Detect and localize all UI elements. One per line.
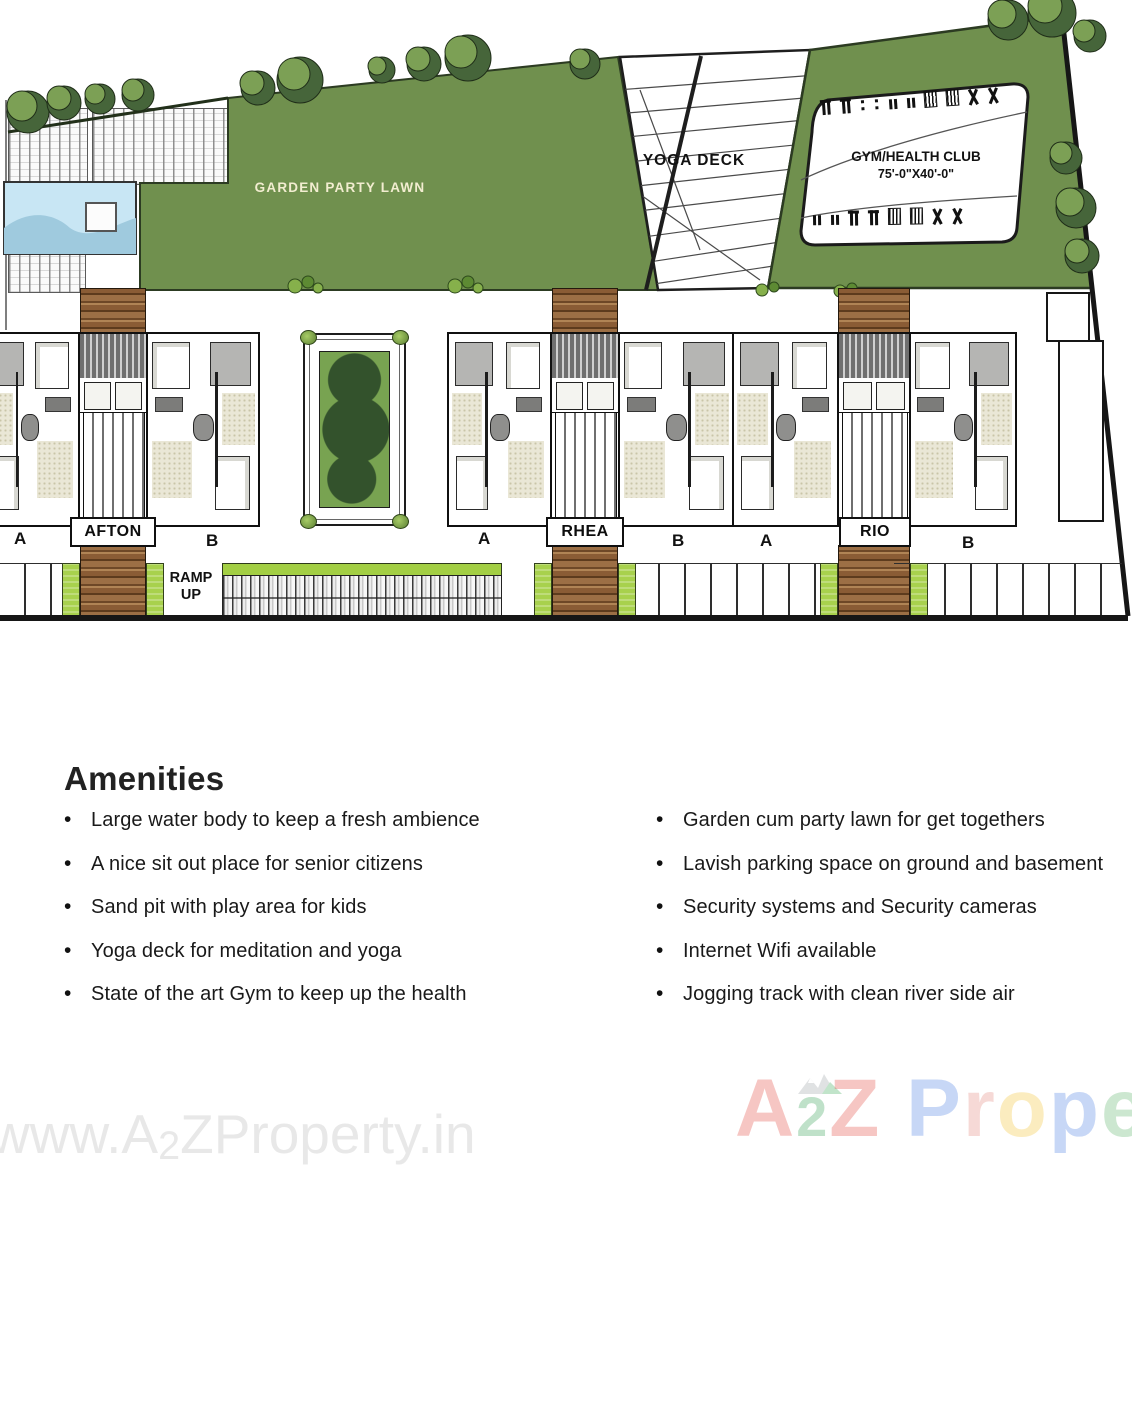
site-boundary-bottom [0, 615, 1128, 621]
floorplan-unit [0, 332, 81, 527]
stair-core [78, 332, 148, 527]
planter-strip [62, 563, 80, 620]
gym-equipment-icon [840, 98, 852, 114]
planter-strip [618, 563, 636, 620]
gym-equipment-icon [923, 90, 937, 108]
building-name-rio: RIO [839, 517, 911, 547]
watermark-letter: A [735, 1063, 796, 1154]
wood-walkway [80, 288, 146, 336]
service-bay [1046, 292, 1090, 342]
watermark-letter: 2 [796, 1086, 829, 1148]
stair-core [837, 332, 911, 527]
amenity-item: Sand pit with play area for kids [62, 896, 602, 919]
watermark-letter: P [906, 1063, 963, 1154]
unit-label: A [478, 529, 490, 549]
gym-label-line1: GYM/HEALTH CLUB [851, 149, 981, 164]
watermark-letter: p [1049, 1063, 1101, 1154]
sun-deck-loungers [8, 108, 88, 185]
floorplan-unit [618, 332, 734, 527]
watermark-letter: e [1101, 1063, 1132, 1154]
amenities-title: Amenities [64, 760, 224, 798]
watermark-letter: Z [829, 1063, 881, 1154]
amenity-item: Large water body to keep a fresh ambienc… [62, 809, 602, 832]
unit-label: B [962, 533, 974, 553]
watermark-letter: r [963, 1063, 997, 1154]
parking-stalls [894, 563, 1126, 619]
gym-equipment-icon [952, 209, 963, 224]
watermark-logo: A2Z Prope [735, 1062, 1132, 1156]
service-corridor [1058, 340, 1104, 522]
amenity-item: Internet Wifi available [654, 940, 1132, 963]
courtyard-garden [303, 333, 406, 526]
gym-equipment-icon [906, 94, 916, 110]
floorplan-unit [146, 332, 260, 527]
amenity-item: State of the art Gym to keep up the heal… [62, 983, 602, 1006]
watermark-letter [881, 1063, 906, 1154]
amenity-item: Lavish parking space on ground and basem… [654, 853, 1132, 876]
gym-equipment-icon [868, 210, 879, 225]
gym-lawn-area [768, 16, 1092, 288]
wood-walkway [552, 288, 618, 336]
amenity-item: Yoga deck for meditation and yoga [62, 940, 602, 963]
ramp-up [222, 563, 500, 618]
stair-core [550, 332, 620, 527]
yoga-deck-planks [590, 74, 830, 290]
gym-equipment-icon [932, 209, 943, 224]
planter-strip [146, 563, 164, 620]
gym-equipment-icon [967, 89, 979, 105]
gym-equipment-icon [820, 99, 832, 115]
amenity-item: Jogging track with clean river side air [654, 983, 1132, 1006]
amenity-item: A nice sit out place for senior citizens [62, 853, 602, 876]
amenity-item: Security systems and Security cameras [654, 896, 1132, 919]
sun-deck-loungers [92, 108, 228, 185]
gym-equipment-row-bottom [812, 207, 963, 227]
unit-label: B [672, 531, 684, 551]
floorplan-unit [909, 332, 1017, 527]
watermark-url: www.A2ZProperty.in [0, 1102, 476, 1169]
floorplan-unit [447, 332, 552, 527]
unit-label: A [14, 529, 26, 549]
sun-deck-loungers [8, 253, 86, 293]
floorplan-unit [732, 332, 839, 527]
gym-equipment-icon [848, 210, 859, 225]
garden-party-lawn-label: GARDEN PARTY LAWN [255, 180, 426, 195]
amenities-list-right: Garden cum party lawn for get togethers … [654, 809, 1132, 1027]
gym-equipment-row-top [820, 86, 1000, 115]
building-name-rhea: RHEA [546, 517, 624, 547]
planter-strip [534, 563, 552, 620]
swimming-pool [4, 182, 136, 254]
watermark-letter: o [997, 1063, 1049, 1154]
building-name-afton: AFTON [70, 517, 156, 547]
gym-equipment-icon [945, 89, 959, 107]
gym-equipment-icon [874, 96, 880, 111]
amenity-item: Garden cum party lawn for get togethers [654, 809, 1132, 832]
planter-strip [910, 563, 928, 620]
brochure-page: GARDEN PARTY LAWN YOGA DECK GYM/HEALTH C… [0, 0, 1132, 1401]
gym-equipment-icon [888, 95, 898, 111]
yoga-deck [620, 50, 810, 290]
planter-strip [820, 563, 838, 620]
wood-walkway [80, 545, 146, 619]
parking-stalls [0, 563, 62, 619]
gym-equipment-icon [830, 211, 839, 226]
gym-equipment-icon [987, 88, 999, 104]
pool-deck-platform [86, 203, 116, 231]
unit-label: B [206, 531, 218, 551]
wood-walkway [838, 288, 910, 336]
wood-walkway [552, 545, 618, 619]
amenities-list-left: Large water body to keep a fresh ambienc… [62, 809, 602, 1027]
yoga-deck-boundary [646, 56, 701, 290]
gym-equipment-icon [860, 97, 866, 112]
ramp-up-label: RAMP UP [163, 570, 219, 603]
gym-equipment-icon [812, 211, 821, 226]
site-plan: GARDEN PARTY LAWN YOGA DECK GYM/HEALTH C… [0, 0, 1132, 645]
pool-water [4, 215, 136, 254]
unit-label: A [760, 531, 772, 551]
gym-floor-line [801, 112, 1027, 180]
gym-equipment-icon [888, 208, 901, 225]
gym-label-line2: 75'-0"X40'-0" [878, 167, 954, 181]
gym-equipment-icon [910, 207, 923, 224]
yoga-deck-label: YOGA DECK [643, 152, 745, 169]
parking-stalls [634, 563, 820, 619]
